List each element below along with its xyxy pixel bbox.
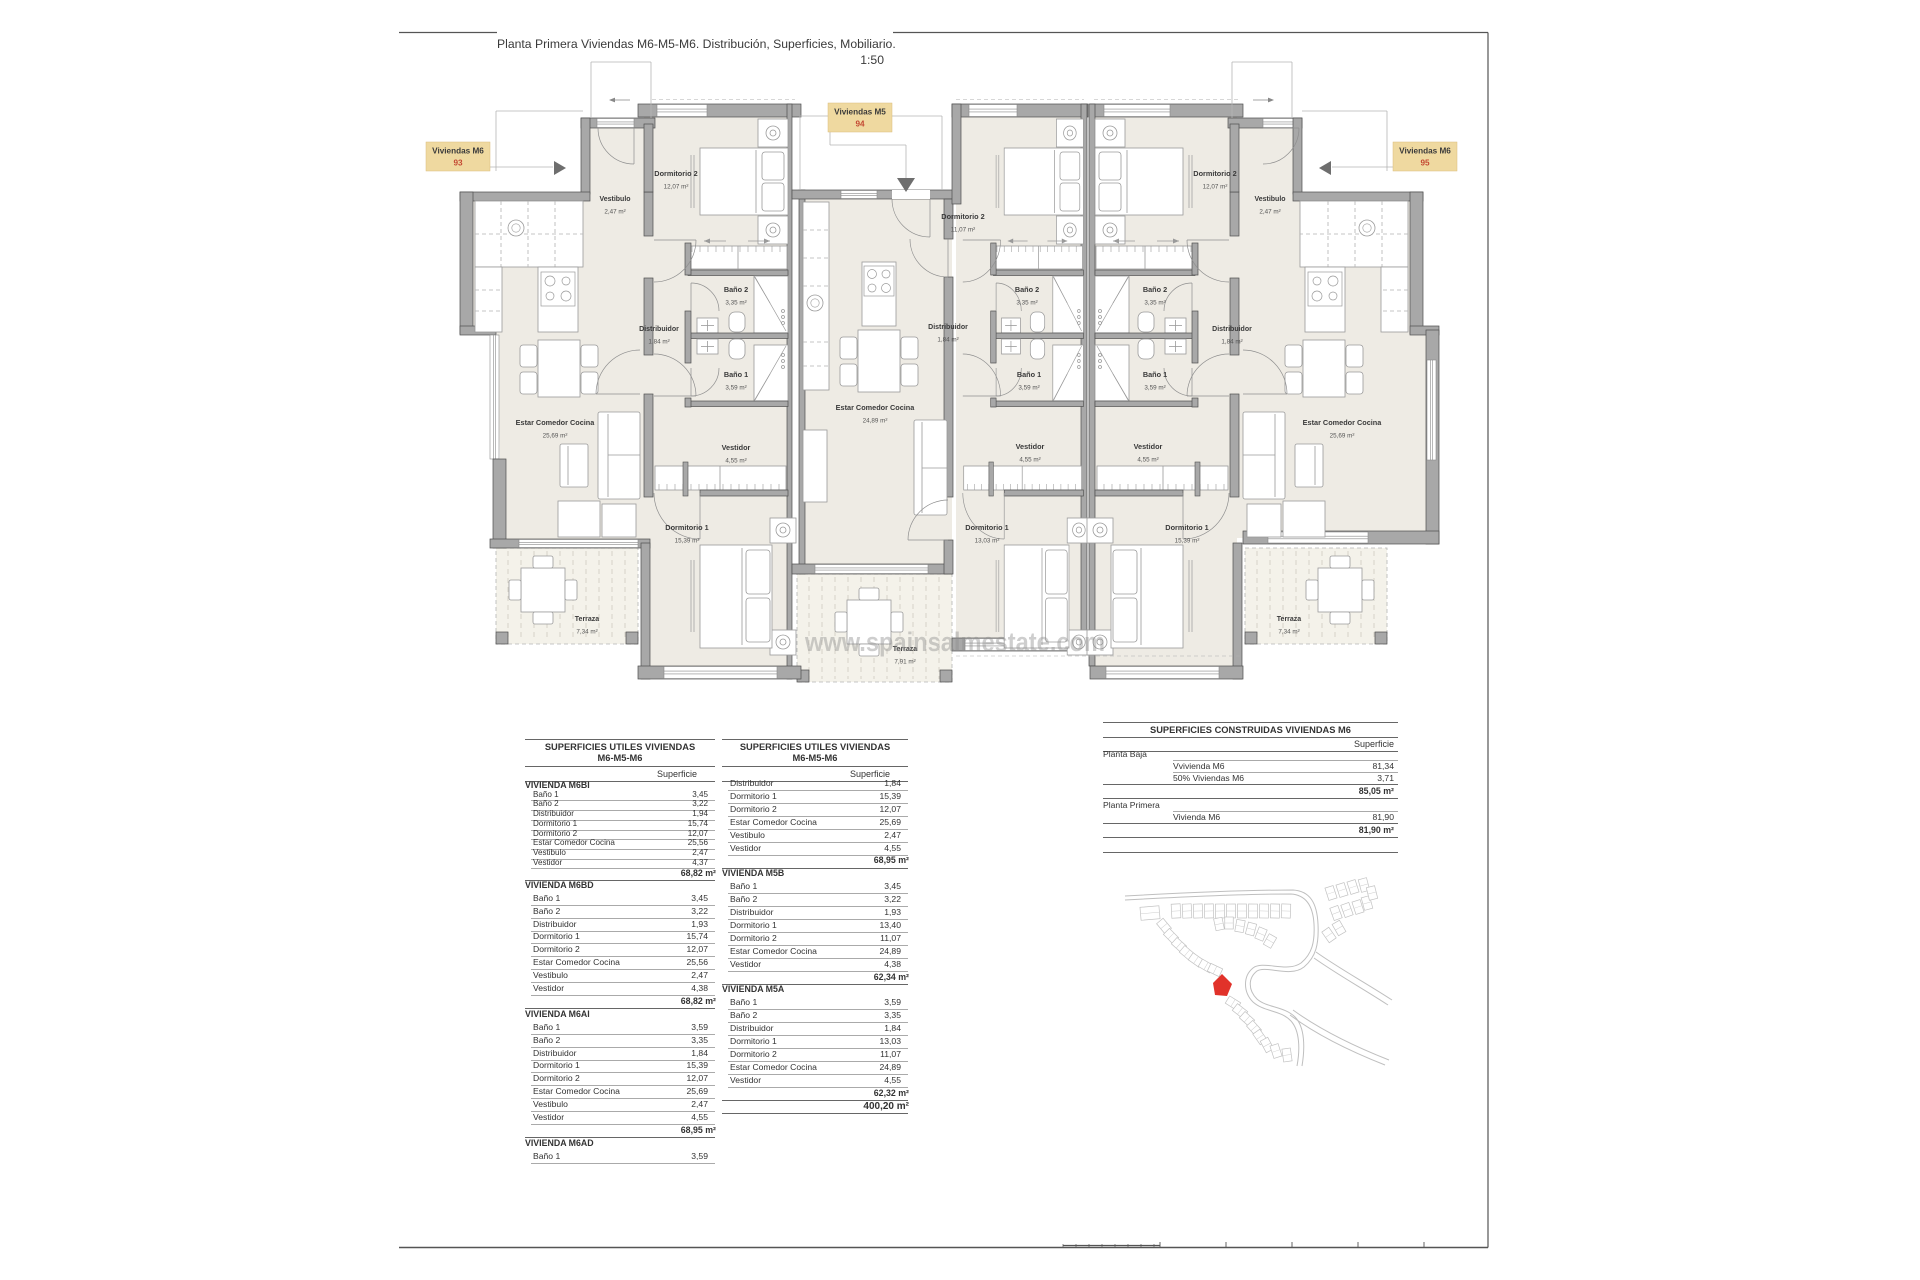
svg-text:11,07 m²: 11,07 m² bbox=[951, 227, 975, 234]
svg-text:3,35 m²: 3,35 m² bbox=[1016, 300, 1037, 307]
svg-text:Estar Comedor Cocina: Estar Comedor Cocina bbox=[836, 403, 916, 412]
svg-text:95: 95 bbox=[1420, 159, 1430, 168]
svg-text:Estar Comedor Cocina: Estar Comedor Cocina bbox=[1303, 418, 1383, 427]
svg-text:3,59 m²: 3,59 m² bbox=[725, 385, 746, 392]
svg-text:Terraza: Terraza bbox=[1277, 616, 1301, 623]
svg-text:Baño 2: Baño 2 bbox=[724, 285, 748, 294]
svg-text:Distribuidor: Distribuidor bbox=[639, 326, 679, 333]
svg-text:Terraza: Terraza bbox=[575, 616, 599, 623]
svg-text:Baño 1: Baño 1 bbox=[1017, 370, 1041, 379]
svg-text:Distribuidor: Distribuidor bbox=[1212, 326, 1252, 333]
svg-text:3,59 m²: 3,59 m² bbox=[1144, 385, 1165, 392]
svg-text:Dormitorio 2: Dormitorio 2 bbox=[941, 212, 984, 221]
svg-text:13,03 m²: 13,03 m² bbox=[975, 538, 1000, 545]
svg-text:Viviendas M5: Viviendas M5 bbox=[834, 108, 886, 117]
svg-text:24,89 m²: 24,89 m² bbox=[863, 418, 888, 425]
svg-text:4,55 m²: 4,55 m² bbox=[725, 458, 746, 465]
svg-text:3,35 m²: 3,35 m² bbox=[725, 300, 746, 307]
svg-text:12,07 m²: 12,07 m² bbox=[664, 184, 689, 191]
svg-text:Dormitorio 1: Dormitorio 1 bbox=[665, 523, 708, 532]
svg-text:Dormitorio 2: Dormitorio 2 bbox=[1193, 169, 1236, 178]
svg-text:25,69 m²: 25,69 m² bbox=[1330, 433, 1355, 440]
svg-text:1,84 m²: 1,84 m² bbox=[937, 337, 958, 344]
svg-text:2,47 m²: 2,47 m² bbox=[1259, 209, 1280, 216]
svg-text:7,91 m²: 7,91 m² bbox=[894, 659, 915, 666]
svg-text:Vestidor: Vestidor bbox=[1134, 442, 1163, 451]
svg-text:Vestidor: Vestidor bbox=[1016, 442, 1045, 451]
svg-text:Vestidor: Vestidor bbox=[722, 443, 751, 452]
svg-text:Vestibulo: Vestibulo bbox=[599, 196, 630, 203]
svg-text:Dormitorio 1: Dormitorio 1 bbox=[1165, 523, 1208, 532]
svg-text:Baño 2: Baño 2 bbox=[1143, 285, 1167, 294]
svg-text:15,39 m²: 15,39 m² bbox=[675, 538, 700, 545]
svg-text:94: 94 bbox=[855, 120, 865, 129]
svg-text:Viviendas M6: Viviendas M6 bbox=[1399, 147, 1451, 156]
svg-text:2,47 m²: 2,47 m² bbox=[604, 209, 625, 216]
svg-text:25,69 m²: 25,69 m² bbox=[543, 433, 568, 440]
svg-text:Baño 1: Baño 1 bbox=[1143, 370, 1167, 379]
svg-text:Dormitorio 1: Dormitorio 1 bbox=[965, 523, 1008, 532]
svg-text:Distribuidor: Distribuidor bbox=[928, 324, 968, 331]
svg-text:Baño 2: Baño 2 bbox=[1015, 285, 1039, 294]
svg-text:7,34 m²: 7,34 m² bbox=[1278, 629, 1299, 636]
svg-text:4,55 m²: 4,55 m² bbox=[1137, 457, 1158, 464]
svg-text:1,84 m²: 1,84 m² bbox=[1221, 339, 1242, 346]
svg-text:Vestibulo: Vestibulo bbox=[1254, 196, 1285, 203]
svg-text:Viviendas M6: Viviendas M6 bbox=[432, 147, 484, 156]
svg-text:12,07 m²: 12,07 m² bbox=[1203, 184, 1228, 191]
svg-text:Baño 1: Baño 1 bbox=[724, 370, 748, 379]
svg-text:Estar Comedor Cocina: Estar Comedor Cocina bbox=[516, 418, 596, 427]
svg-text:www.spainsalmestate.com: www.spainsalmestate.com bbox=[804, 627, 1105, 657]
svg-text:93: 93 bbox=[453, 159, 463, 168]
svg-text:3,59 m²: 3,59 m² bbox=[1018, 385, 1039, 392]
svg-text:7,34 m²: 7,34 m² bbox=[576, 629, 597, 636]
svg-text:3,35 m²: 3,35 m² bbox=[1144, 300, 1165, 307]
svg-text:Dormitorio 2: Dormitorio 2 bbox=[654, 169, 697, 178]
svg-text:1,84 m²: 1,84 m² bbox=[648, 339, 669, 346]
svg-text:4,55 m²: 4,55 m² bbox=[1019, 457, 1040, 464]
svg-text:15,39 m²: 15,39 m² bbox=[1175, 538, 1200, 545]
